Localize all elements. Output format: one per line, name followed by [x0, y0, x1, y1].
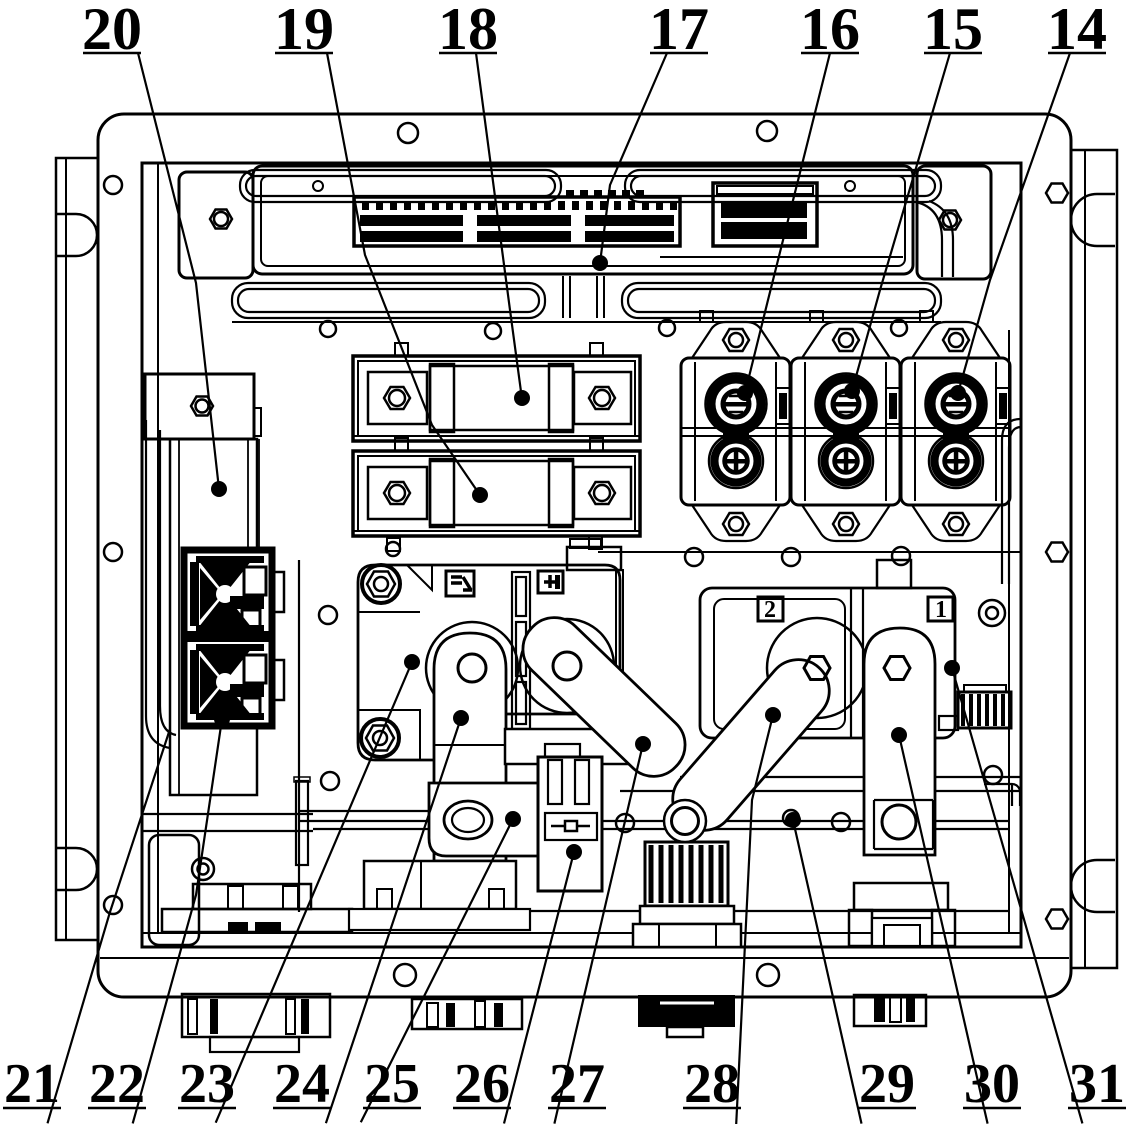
svg-text:1: 1 [935, 597, 947, 623]
svg-text:27: 27 [549, 1053, 605, 1115]
svg-text:29: 29 [859, 1053, 915, 1115]
svg-text:26: 26 [454, 1053, 510, 1115]
svg-text:30: 30 [964, 1053, 1020, 1115]
svg-text:2: 2 [764, 597, 776, 623]
svg-text:24: 24 [274, 1053, 330, 1115]
svg-text:23: 23 [179, 1053, 235, 1115]
svg-text:28: 28 [684, 1053, 740, 1115]
